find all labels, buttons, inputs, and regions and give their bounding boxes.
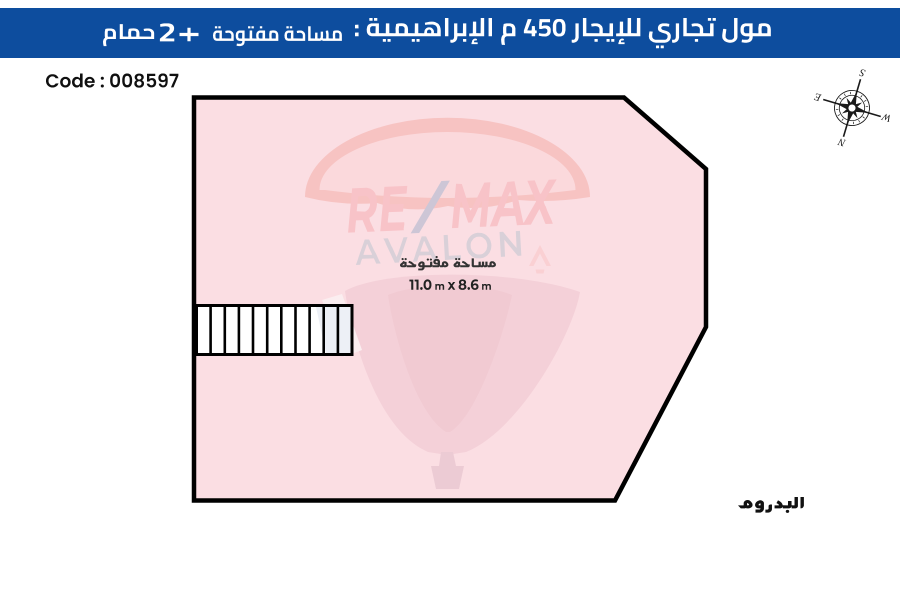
- svg-text:E: E: [813, 90, 824, 103]
- svg-text:S: S: [858, 66, 867, 78]
- svg-text:W: W: [880, 110, 893, 123]
- svg-text:N: N: [836, 135, 848, 148]
